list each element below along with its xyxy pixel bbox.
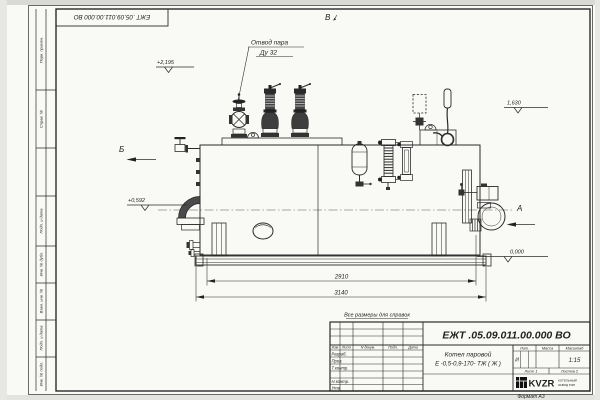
photo-edge-left xyxy=(0,0,7,400)
dimension-drum-length: 2910 xyxy=(334,275,349,281)
format-label: Формат А3 xyxy=(517,394,545,400)
elevation-valve-top: +2,195 xyxy=(157,60,175,66)
margin-label: Взам. инв. № xyxy=(39,288,44,313)
title-name-line2: Е -0,5-0,9-170- ТЖ ( Ж ) xyxy=(435,362,501,368)
scale-value: 1:15 xyxy=(569,358,581,364)
dimension-overall-length: 3140 xyxy=(334,291,348,297)
sheets-total: Листов 2 xyxy=(560,370,579,374)
steam-outlet-label-line1: Отвод пара xyxy=(251,39,289,47)
row-label-prov: Пров. xyxy=(332,359,343,364)
title-doc-number: ЕЖТ .05.09.011.00.000 ВО xyxy=(442,330,570,342)
row-label-nkontr: Н.контр. xyxy=(332,379,350,384)
elevation-right-level: 1,630 xyxy=(507,101,522,107)
col-header-podp: Подп. xyxy=(388,346,398,350)
scale-header: Масштаб xyxy=(566,347,585,351)
col-header-data: Дата xyxy=(407,346,417,350)
margin-label: Перв. примен. xyxy=(39,37,44,64)
margin-label: Подп. и дата xyxy=(39,208,44,234)
sheet-number: Лист 1 xyxy=(524,370,538,374)
view-label-top: В xyxy=(325,13,331,22)
col-header-list: Лист xyxy=(341,346,351,350)
row-label-utv: Утв. xyxy=(332,386,342,391)
blueprint-svg: Перв. примен. Справ. № Подп. и дата Инв.… xyxy=(0,0,600,400)
col-header-dokum: N докум. xyxy=(361,346,376,350)
steam-outlet-label-line2: Ду 32 xyxy=(259,50,277,57)
drawing-sheet: Перв. примен. Справ. № Подп. и дата Инв.… xyxy=(0,0,600,400)
reference-note: Все размеры для справок xyxy=(344,313,410,319)
margin-label: Инв. № дубл. xyxy=(39,252,44,277)
logo-sub1: КОТЕЛЬНЫЙ xyxy=(558,379,577,383)
logo-sub2: ЗАВОД РЭП xyxy=(558,383,575,387)
elevation-smoke-outlet: +0,592 xyxy=(128,198,145,204)
col-header-izm: Изм xyxy=(332,346,339,350)
photo-edge-top xyxy=(0,0,600,5)
margin-label: Подп. и дата xyxy=(39,325,44,351)
view-label-right: А xyxy=(516,204,522,213)
logo-text: KVZR xyxy=(529,379,555,390)
photo-edge-bottom xyxy=(0,395,600,400)
row-label-razrab: Разраб. xyxy=(332,352,347,357)
view-label-left: Б xyxy=(119,145,124,154)
corner-stamp-number: ЕЖТ .05.09.011.00.000 ВО xyxy=(74,13,151,20)
elevation-ground: 0,000 xyxy=(510,250,525,256)
photo-edge-right xyxy=(595,0,600,400)
margin-label: Инв. № подл. xyxy=(39,362,44,387)
mass-header: Масса xyxy=(542,347,553,351)
lit-header: Лит. xyxy=(519,347,529,351)
lit-value: И xyxy=(515,358,519,364)
row-label-tkontr: Т.контр. xyxy=(332,366,349,371)
title-name-line1: Котел паровой xyxy=(445,351,492,359)
margin-label: Справ. № xyxy=(39,109,44,128)
